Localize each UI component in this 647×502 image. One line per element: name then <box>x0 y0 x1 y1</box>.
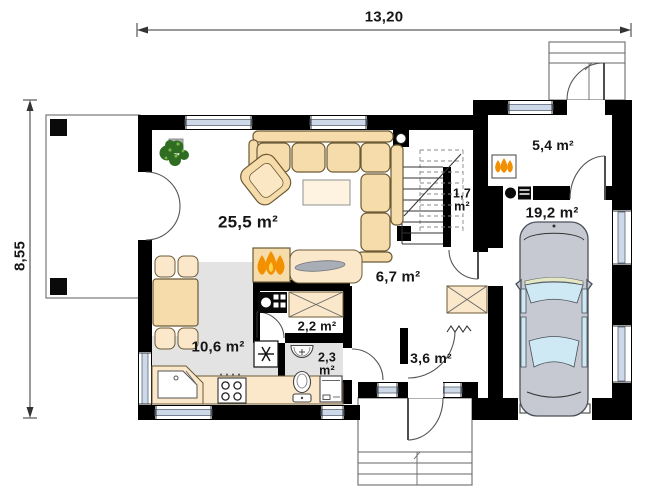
window <box>377 383 398 397</box>
stairs-label-line2: m² <box>453 200 471 213</box>
window <box>508 101 553 114</box>
window <box>321 406 344 419</box>
sideboard <box>290 250 362 283</box>
window <box>613 325 631 383</box>
pantry-appliance-icon <box>258 292 287 313</box>
door-hall-garage <box>449 248 503 286</box>
room-label-pantry: 2,2 m² <box>298 319 337 332</box>
entry-porch-top <box>549 42 625 100</box>
room-label-living: 25,5 m² <box>218 213 278 230</box>
door-utility-garage <box>570 156 606 200</box>
chair <box>155 256 175 277</box>
boiler-icon <box>492 155 516 178</box>
room-label-vestibule: 3,6 m² <box>410 351 452 365</box>
window <box>613 210 631 265</box>
floor-plan-drawing <box>0 0 647 502</box>
room-label-garage: 19,2 m² <box>525 205 578 220</box>
room-label-kitchen: 10,6 m² <box>191 339 244 354</box>
stairs-label-line1: 1,7 <box>453 187 471 200</box>
dimension-width-label: 13,20 <box>365 9 404 24</box>
water-heater-icon <box>503 184 533 202</box>
fridge-icon <box>254 341 278 367</box>
bathroom-label-line1: 2,3 <box>318 351 336 364</box>
french-door <box>137 172 180 240</box>
column-marker <box>396 134 406 144</box>
window <box>310 116 367 129</box>
car-top-view-icon <box>516 222 592 416</box>
floor-plan: 13,20 8,55 25,5 m² 10,6 m² 6,7 m² 2,2 m²… <box>0 0 647 502</box>
wardrobe <box>447 286 487 313</box>
window <box>185 116 252 129</box>
chair <box>155 328 175 349</box>
dining-table <box>153 279 198 326</box>
dimension-height-label: 8,55 <box>12 241 27 271</box>
window <box>155 406 212 419</box>
coffee-table <box>303 180 350 205</box>
stair-railing-wall <box>443 167 451 247</box>
stove <box>218 374 246 404</box>
door-bathroom <box>343 348 383 380</box>
terrace-column <box>50 278 67 295</box>
dining-set <box>153 256 198 349</box>
window <box>443 383 462 397</box>
entry-porch-bottom <box>358 398 472 485</box>
toilet <box>293 372 311 403</box>
plant <box>160 139 190 166</box>
bathroom-label-line2: m² <box>318 364 336 377</box>
fireplace <box>253 248 290 282</box>
room-label-hall: 6,7 m² <box>376 269 421 284</box>
room-label-utility: 5,4 m² <box>532 138 574 152</box>
room-label-stairs: 1,7 m² <box>453 187 471 213</box>
room-label-bathroom: 2,3 m² <box>318 351 336 377</box>
pantry-shelf <box>289 292 343 317</box>
coat-hooks-icon <box>447 326 471 332</box>
terrace-column <box>50 119 67 136</box>
terrace <box>46 115 140 298</box>
washing-machine <box>320 376 342 402</box>
chair <box>178 256 198 277</box>
window <box>139 352 151 405</box>
